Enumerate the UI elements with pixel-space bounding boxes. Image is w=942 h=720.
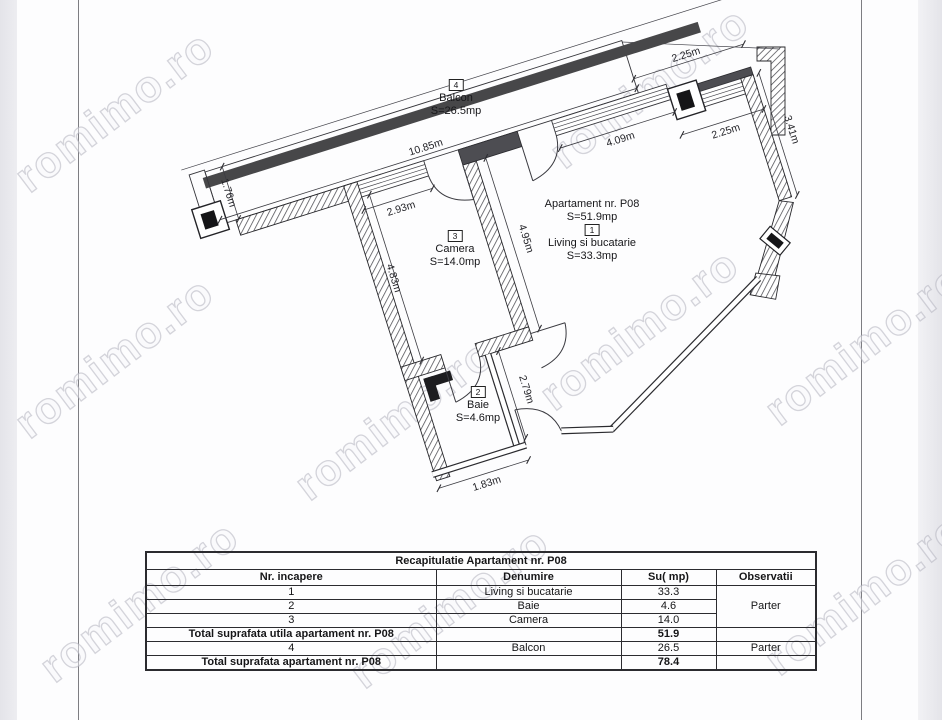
cell-su: 26.5 [621,642,716,656]
cell-observatii-merged: Parter [716,586,816,628]
thin-walls [403,270,789,485]
apartment-title: Apartament nr. P08 [545,198,640,210]
svg-text:4.95m: 4.95m [516,223,536,255]
table-header-row: Nr. incapere Denumire Su( mp) Observatii [146,570,816,586]
window-living [552,84,671,135]
cell-su: 33.3 [621,586,716,600]
col-header-observatii: Observatii [716,570,816,586]
room-number-baie: 2 [471,386,486,398]
baie-fixture [423,371,457,402]
cell-observatii: Parter [716,642,816,656]
cell-nr: 4 [146,642,436,656]
room-number-living: 1 [585,224,600,236]
room-number-camera: 3 [448,230,463,242]
door-entrance [515,398,562,445]
label-camera: 3 Camera S=14.0mp [430,230,480,269]
total-utila-label: Total suprafata utila apartament nr. P08 [146,628,436,642]
total-label: Total suprafata apartament nr. P08 [146,656,436,671]
room-area-balcon: S=26.5mp [431,105,481,117]
door-living [522,136,567,181]
cell-nr: 1 [146,586,436,600]
col-header-su: Su( mp) [621,570,716,586]
table-row-balcon: 4 Balcon 26.5 Parter [146,642,816,656]
dim-baie-width: 1.83m [435,456,536,504]
cell-empty [436,628,621,642]
cell-empty [436,656,621,671]
svg-text:2.79m: 2.79m [516,374,536,406]
cell-denumire: Living si bucatarie [436,586,621,600]
window-camera [355,161,428,198]
room-area-baie: S=4.6mp [456,412,500,424]
room-area-camera: S=14.0mp [430,256,480,268]
door-hall-living [531,323,576,368]
table-total-utila-row: Total suprafata utila apartament nr. P08… [146,628,816,642]
label-apartment: Apartament nr. P08 S=51.9mp 1 Living si … [545,198,640,263]
cell-su: 4.6 [621,600,716,614]
label-baie: 2 Baie S=4.6mp [456,386,500,425]
room-area-living: S=33.3mp [567,250,617,262]
cell-nr: 3 [146,614,436,628]
balcony [179,0,757,238]
col-header-denumire: Denumire [436,570,621,586]
room-name-balcon: Balcon [439,92,473,104]
cell-nr: 2 [146,600,436,614]
room-name-living: Living si bucatarie [548,237,636,249]
recap-table: Recapitulatie Apartament nr. P08 Nr. inc… [145,551,817,671]
table-row: 3 Camera 14.0 [146,614,816,628]
table-title: Recapitulatie Apartament nr. P08 [146,552,816,570]
col-header-nr: Nr. incapere [146,570,436,586]
baie-top-wall [475,327,533,357]
total-utila-value: 51.9 [621,628,716,642]
cell-denumire: Baie [436,600,621,614]
cell-su: 14.0 [621,614,716,628]
total-value: 78.4 [621,656,716,671]
apartment-area: S=51.9mp [567,211,617,223]
table-row: 1 Living si bucatarie 33.3 Parter [146,586,816,600]
label-balcon: 4 Balcon S=26.5mp [431,79,481,118]
cell-denumire: Balcon [436,642,621,656]
exterior-wall-left [344,182,450,481]
table-total-row: Total suprafata apartament nr. P08 78.4 [146,656,816,671]
room-name-camera: Camera [435,243,474,255]
cell-denumire: Camera [436,614,621,628]
room-name-baie: Baie [467,399,489,411]
cell-empty [716,656,816,671]
cell-empty [716,628,816,642]
table-row: 2 Baie 4.6 [146,600,816,614]
room-number-balcon: 4 [449,79,464,91]
